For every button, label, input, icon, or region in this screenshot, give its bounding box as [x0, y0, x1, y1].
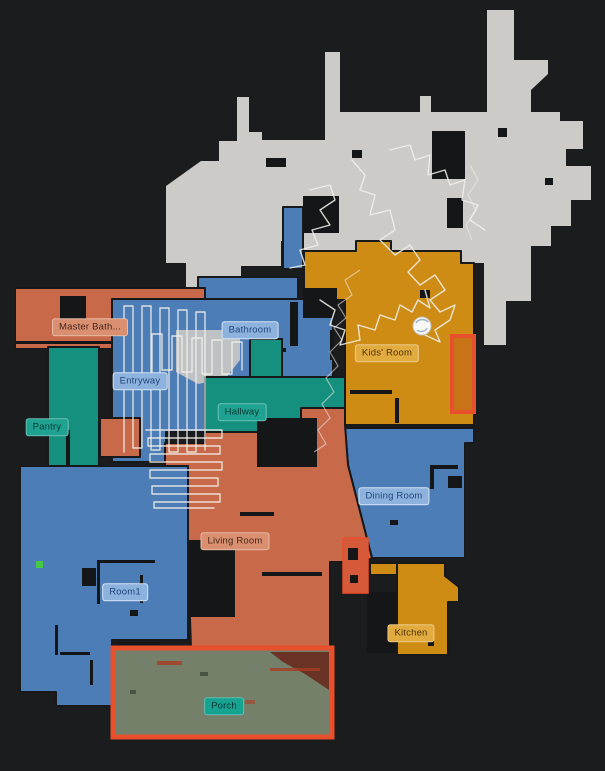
room-kitchen-strip[interactable]: [370, 563, 397, 575]
room-label-dining-room[interactable]: Dining Room: [358, 487, 429, 505]
room-bathroom-upper-block[interactable]: [198, 277, 298, 301]
room-porch-area[interactable]: [113, 648, 332, 737]
room-label-room1[interactable]: Room1: [102, 583, 148, 601]
room-hallway-upper[interactable]: [250, 339, 282, 377]
room-label-hallway[interactable]: Hallway: [218, 403, 267, 421]
room-label-kitchen[interactable]: Kitchen: [387, 624, 434, 642]
carpet-zone[interactable]: [343, 538, 368, 593]
room-label-pantry[interactable]: Pantry: [26, 418, 69, 436]
room-label-entryway[interactable]: Entryway: [113, 372, 168, 390]
room-label-living-room[interactable]: Living Room: [200, 532, 269, 550]
room-label-bathroom[interactable]: Bathroom: [222, 321, 279, 339]
room-label-porch[interactable]: Porch: [204, 697, 244, 715]
vacuum-map-view: Master Bath... Bathroom Kids' Room Entry…: [0, 0, 605, 771]
green-marker: [36, 561, 43, 568]
room-bathroom-upper-strip[interactable]: [283, 207, 303, 269]
floor-map-canvas: [0, 0, 605, 771]
robot-marker[interactable]: [413, 317, 431, 335]
room-label-master-bath[interactable]: Master Bath...: [52, 318, 128, 336]
room-pantry-annex[interactable]: [100, 418, 140, 457]
room-label-kids-room[interactable]: Kids' Room: [355, 344, 419, 362]
zone-highlight-kids-room[interactable]: [452, 336, 474, 412]
